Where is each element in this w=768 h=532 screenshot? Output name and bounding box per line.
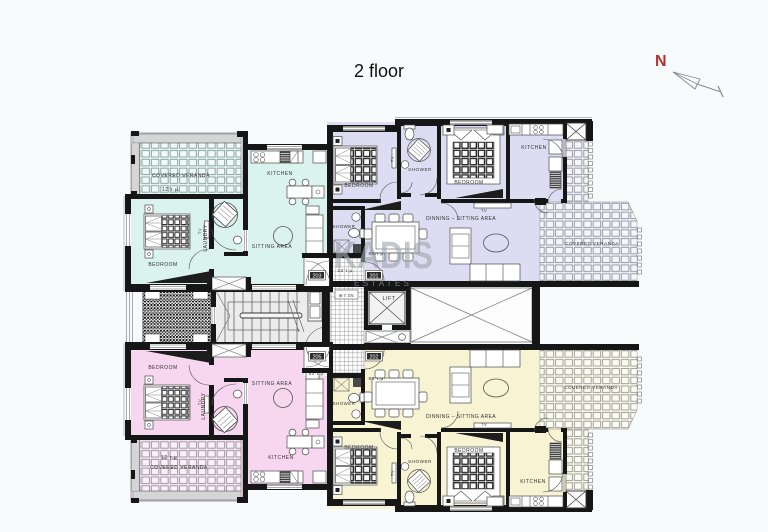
svg-text:COVERED VERANDA: COVERED VERANDA	[564, 385, 618, 390]
svg-text:12 τ.μ.: 12 τ.μ.	[162, 187, 180, 193]
svg-text:BEDROOM: BEDROOM	[344, 183, 373, 189]
svg-text:TV: TV	[481, 208, 487, 213]
svg-text:DINNING – SITTING AREA: DINNING – SITTING AREA	[426, 414, 496, 420]
svg-text:TV: TV	[390, 156, 395, 162]
svg-text:LIFT: LIFT	[382, 296, 395, 302]
svg-text:84 τ.μ.: 84 τ.μ.	[369, 251, 386, 256]
svg-text:2 floor: 2 floor	[354, 61, 404, 81]
svg-text:TV: TV	[481, 422, 487, 427]
svg-text:N: N	[655, 53, 667, 70]
svg-text:SITTING AREA: SITTING AREA	[252, 244, 293, 250]
svg-text:COVERED VERANDA: COVERED VERANDA	[152, 173, 210, 179]
svg-text:KITCHEN: KITCHEN	[267, 171, 292, 177]
svg-text:SHOWER: SHOWER	[408, 167, 432, 172]
svg-text:TV: TV	[198, 228, 203, 234]
svg-text:ESTATES: ESTATES	[354, 279, 412, 288]
svg-text:201: 201	[370, 273, 379, 279]
svg-text:KITCHEN: KITCHEN	[521, 145, 546, 151]
svg-text:BEDROOM: BEDROOM	[454, 448, 483, 454]
svg-text:SHOWER: SHOWER	[333, 224, 356, 229]
svg-text:84 τ.μ.: 84 τ.μ.	[369, 376, 386, 381]
svg-text:TV: TV	[198, 399, 203, 405]
svg-text:SHOWER: SHOWER	[333, 401, 356, 406]
svg-text:COVERED VERANDA: COVERED VERANDA	[150, 465, 208, 471]
svg-text:12 τ.μ.: 12 τ.μ.	[161, 455, 179, 461]
svg-text:203: 203	[313, 273, 322, 279]
svg-text:BEDROOM: BEDROOM	[344, 445, 373, 451]
svg-text:TV: TV	[390, 470, 395, 476]
svg-text:BEDROOM: BEDROOM	[148, 365, 177, 371]
svg-text:BEDROOM: BEDROOM	[454, 180, 483, 186]
svg-text:⊕7.05: ⊕7.05	[339, 293, 354, 298]
svg-text:BEDROOM: BEDROOM	[148, 262, 177, 268]
svg-text:205: 205	[313, 354, 322, 360]
svg-text:202: 202	[370, 354, 379, 360]
svg-text:22 τ.μ.: 22 τ.μ.	[338, 268, 355, 273]
svg-text:KITCHEN: KITCHEN	[520, 479, 545, 485]
svg-text:KITCHEN: KITCHEN	[268, 455, 293, 461]
svg-text:SITTING AREA: SITTING AREA	[252, 381, 293, 387]
svg-text:COVERED VERANDA: COVERED VERANDA	[565, 241, 619, 246]
svg-text:SHOWER: SHOWER	[408, 459, 432, 464]
svg-text:DINNING – SITTING AREA: DINNING – SITTING AREA	[426, 216, 496, 222]
svg-text:LAUNDRY: LAUNDRY	[203, 224, 209, 251]
